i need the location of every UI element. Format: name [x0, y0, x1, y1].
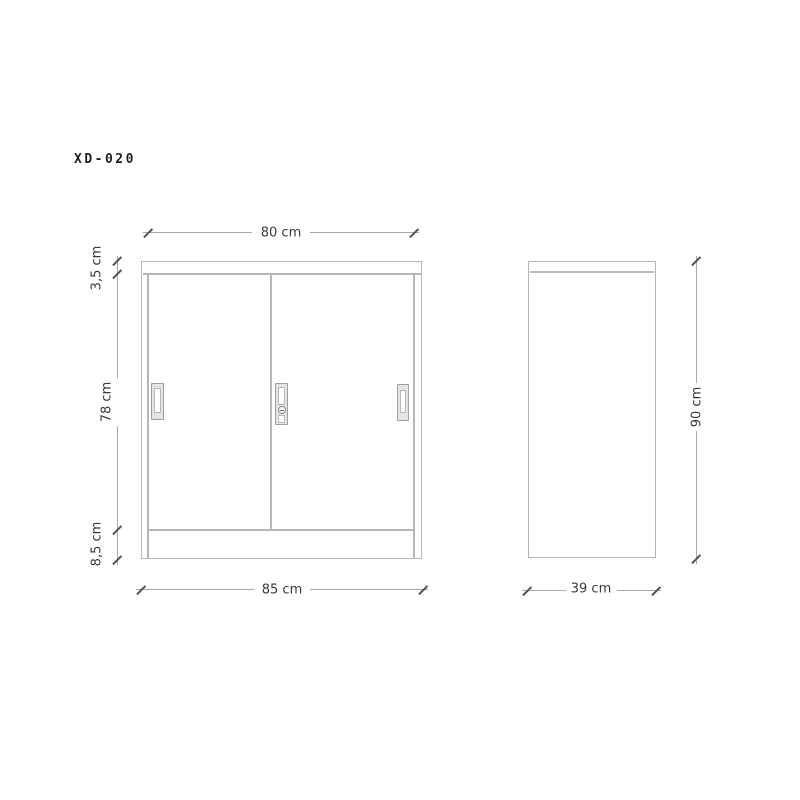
dim-label-door-height: 78 cm — [100, 382, 115, 423]
model-code: XD-020 — [74, 152, 136, 167]
dim-label-top-width: 80 cm — [261, 226, 302, 241]
front-top-panel-line — [143, 273, 421, 275]
side-top-panel-line — [530, 271, 654, 273]
dim-tick — [136, 585, 146, 595]
lock-cylinder-icon — [278, 406, 286, 414]
dim-tick — [522, 586, 532, 596]
right-door-handle-slot — [400, 390, 406, 413]
dim-label-depth: 39 cm — [571, 582, 612, 597]
keyhole-icon — [280, 410, 284, 411]
front-door-split-line — [270, 274, 272, 530]
dim-label-bottom-width: 85 cm — [262, 583, 303, 598]
dim-label-base-height: 8,5 cm — [90, 522, 105, 567]
dim-label-top-panel: 3,5 cm — [90, 246, 105, 291]
dim-tick — [651, 586, 661, 596]
center-door-handle-lower-slot — [278, 415, 285, 423]
dim-tick — [143, 228, 153, 238]
center-door-handle-slot — [278, 387, 285, 405]
technical-drawing-canvas: XD-020 — [0, 0, 800, 800]
dimension-line-segment — [696, 431, 697, 564]
dimension-line-segment — [310, 232, 419, 233]
front-left-rail-line — [147, 274, 149, 559]
dimension-line-segment — [117, 426, 118, 565]
side-cabinet-outline — [528, 261, 656, 558]
front-plinth-line — [148, 529, 414, 531]
left-door-handle — [151, 383, 164, 420]
dimension-line-segment — [696, 256, 697, 383]
dim-label-height: 90 cm — [690, 387, 705, 428]
right-door-handle — [397, 384, 409, 421]
dimension-line-segment — [136, 589, 254, 590]
center-door-handle — [275, 383, 288, 425]
dim-tick — [409, 228, 419, 238]
dim-tick — [418, 585, 428, 595]
left-door-handle-slot — [154, 388, 161, 413]
dimension-line-segment — [143, 232, 252, 233]
dimension-line-segment — [310, 589, 428, 590]
front-right-rail-line — [413, 274, 415, 559]
